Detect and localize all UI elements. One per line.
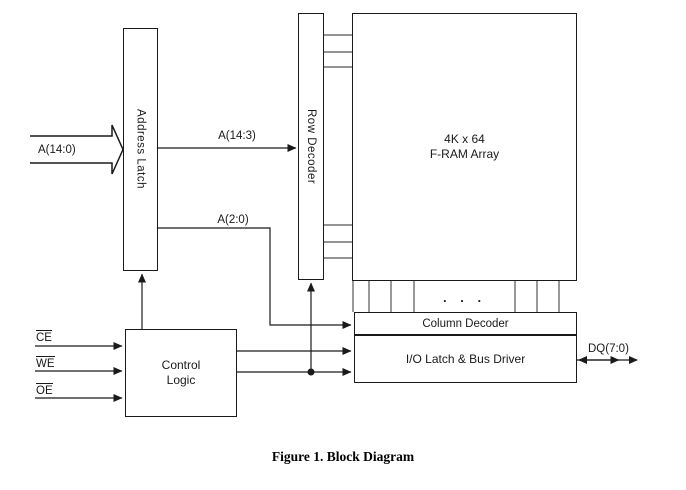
rowdecoder-array-buslines [324, 35, 352, 258]
address-latch-label: Address Latch [134, 109, 148, 189]
control-logic-label: Control Logic [162, 358, 201, 388]
signal-we-label: WE [36, 356, 55, 371]
busline-ellipsis: . . . [443, 290, 486, 305]
diagram-wires [0, 0, 686, 490]
signal-ce-label: CE [36, 330, 52, 345]
row-decoder-block: Row Decoder [298, 13, 324, 280]
dq-arrowhead-left [578, 356, 587, 364]
signal-a2-0-label: A(2:0) [211, 214, 255, 227]
figure-caption: Figure 1. Block Diagram [193, 449, 493, 465]
control-logic-block: Control Logic [125, 329, 237, 417]
signal-a14-3-label: A(14:3) [213, 130, 261, 143]
column-decoder-label: Column Decoder [422, 317, 508, 331]
signal-dq-label: DQ(7:0) [588, 343, 629, 356]
fram-array-block: 4K x 64 F-RAM Array [352, 13, 577, 281]
io-latch-label: I/O Latch & Bus Driver [406, 352, 525, 366]
signal-a14-0-label: A(14:0) [38, 144, 76, 157]
signal-oe-label: OE [36, 383, 53, 398]
dq-arrowhead-right [629, 356, 638, 364]
wire-junction-dot [308, 369, 315, 376]
column-decoder-block: Column Decoder [354, 312, 577, 335]
block-diagram: Address Latch Row Decoder 4K x 64 F-RAM … [0, 0, 686, 490]
fram-array-label: 4K x 64 F-RAM Array [430, 132, 499, 162]
row-decoder-label: Row Decoder [304, 109, 318, 184]
address-latch-block: Address Latch [123, 28, 158, 271]
io-latch-block: I/O Latch & Bus Driver [354, 335, 577, 383]
